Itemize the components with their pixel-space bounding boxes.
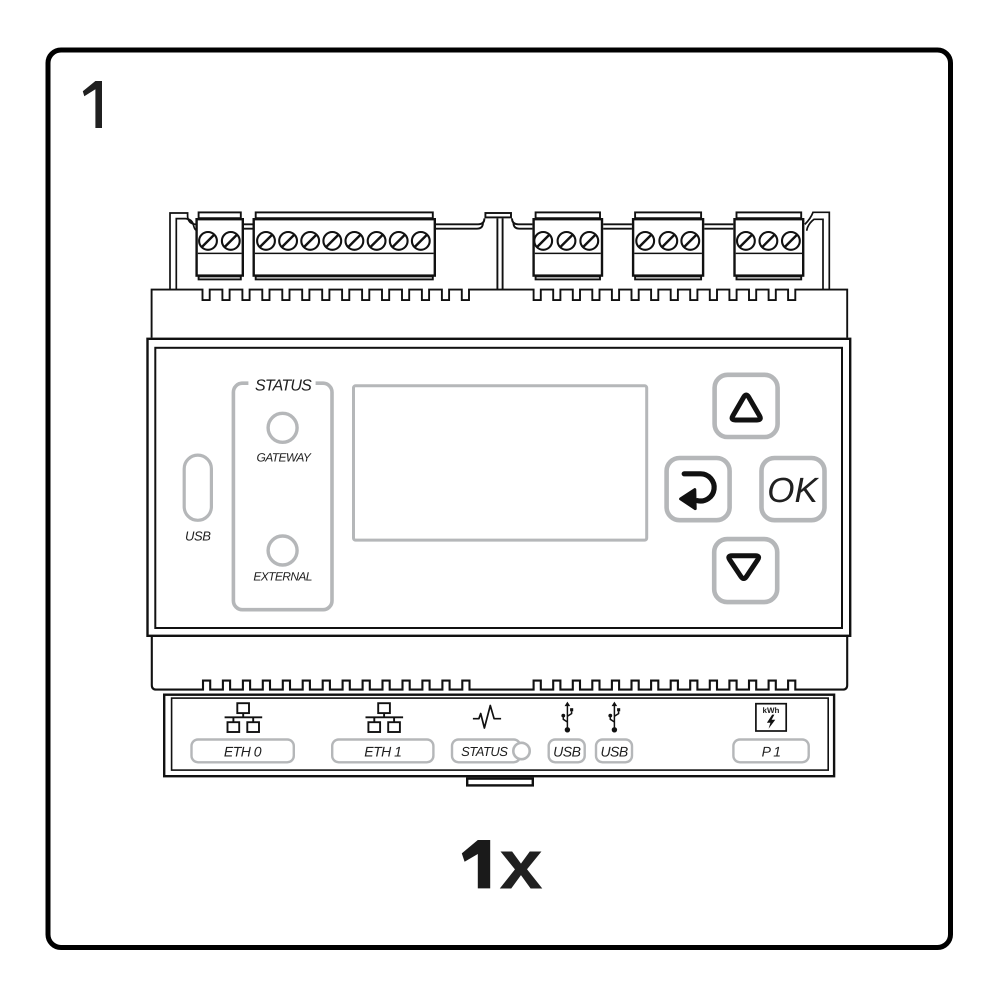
svg-text:USB: USB	[185, 529, 211, 544]
svg-text:GATEWAY: GATEWAY	[256, 450, 311, 464]
svg-text:USB: USB	[553, 744, 580, 760]
svg-text:USB: USB	[600, 744, 627, 760]
svg-text:ETH 1: ETH 1	[364, 744, 401, 760]
svg-text:STATUS: STATUS	[461, 744, 508, 759]
svg-text:x: x	[499, 825, 543, 903]
svg-text:OK: OK	[767, 471, 819, 510]
svg-text:EXTERNAL: EXTERNAL	[253, 570, 312, 584]
svg-text:STATUS: STATUS	[255, 378, 312, 395]
svg-text:kWh: kWh	[763, 706, 780, 715]
svg-text:P 1: P 1	[762, 744, 781, 760]
svg-text:ETH 0: ETH 0	[224, 744, 262, 760]
